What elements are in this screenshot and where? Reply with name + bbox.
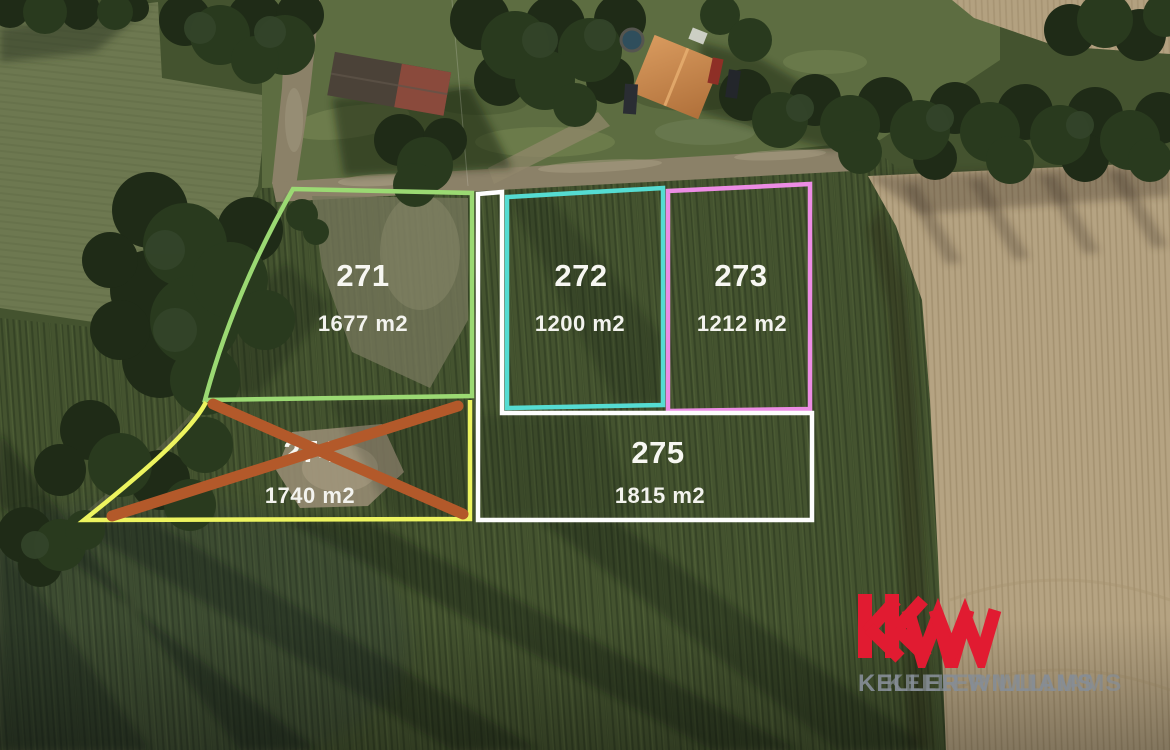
pool: [621, 29, 643, 51]
plot-271-number: 271: [336, 258, 389, 293]
plot-273-number: 273: [714, 258, 767, 293]
plot-273-area: 1212 m2: [697, 311, 787, 336]
photo-canvas: 271 1677 m2 272 1200 m2 273 1212 m2 274 …: [0, 0, 1170, 750]
plot-274-area: 1740 m2: [265, 483, 355, 508]
aerial-parcel-photo: 271 1677 m2 272 1200 m2 273 1212 m2 274 …: [0, 0, 1170, 750]
plot-271-area: 1677 m2: [318, 311, 408, 336]
bottom-vignette: [0, 620, 1170, 750]
plot-272-area: 1200 m2: [535, 311, 625, 336]
plot-275-number: 275: [631, 435, 684, 470]
plot-275-area: 1815 m2: [615, 483, 705, 508]
plot-272-number: 272: [554, 258, 607, 293]
